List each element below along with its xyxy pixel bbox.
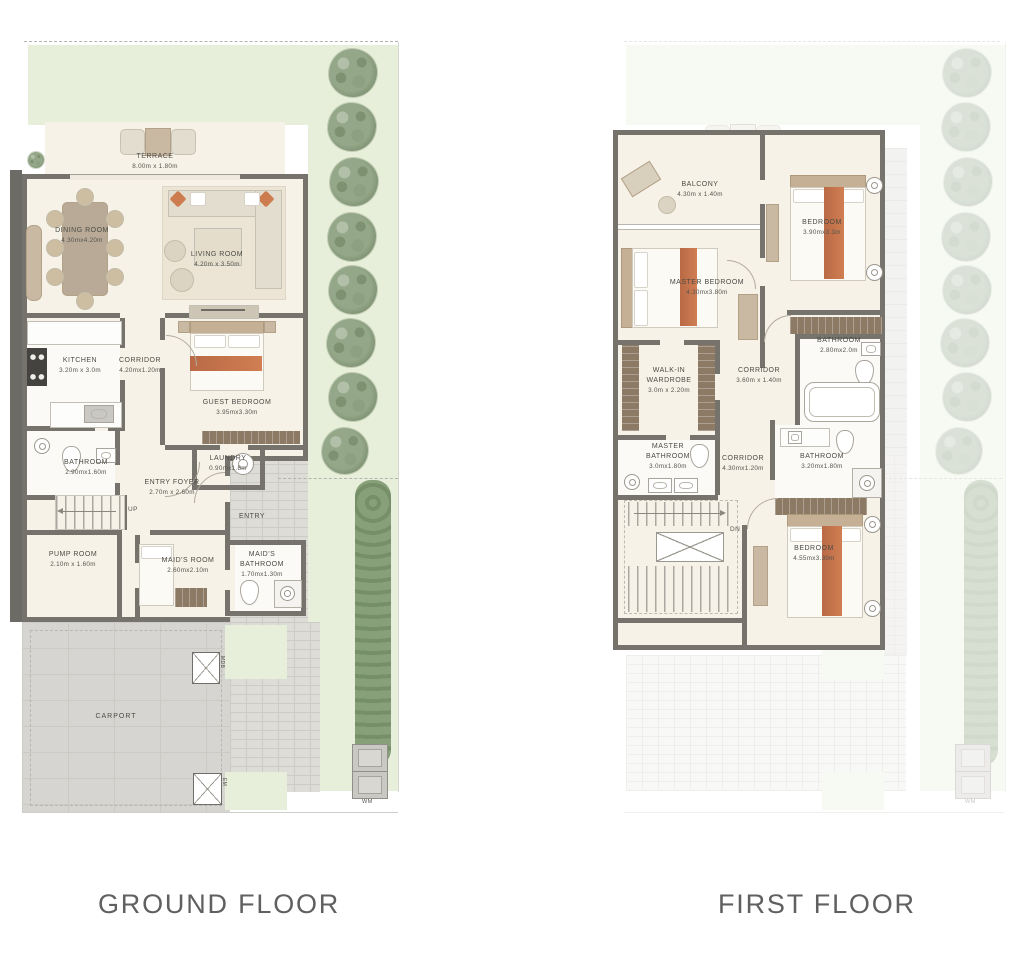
green-patch-lower [225, 772, 287, 810]
wm-label: WM [965, 799, 976, 805]
pillow [793, 189, 828, 203]
stove-icon [27, 348, 47, 386]
bathroom-mid-label: BATHROOM 3.20mx1.80m [800, 452, 844, 471]
ground-floor-caption: GROUND FLOOR [98, 889, 340, 920]
tree-icon [936, 428, 982, 474]
dresser [753, 546, 768, 606]
nightstand [864, 516, 881, 533]
wardrobe [790, 317, 882, 334]
room-dims: 3.90mx3.3m [802, 228, 842, 237]
wall [22, 530, 122, 535]
mdb-box [192, 652, 220, 684]
tree-icon [322, 428, 368, 474]
wall [117, 535, 122, 617]
plot-line-bottom [624, 812, 1004, 813]
wall [225, 540, 230, 570]
wall [248, 445, 308, 450]
party-wall [10, 170, 22, 622]
nightstand [866, 264, 883, 281]
nightstand [178, 321, 190, 333]
room-name: WALK-IN WARDROBE [642, 366, 696, 386]
cushion [190, 192, 206, 206]
pillow [634, 252, 648, 288]
cushion [244, 192, 260, 206]
shower-icon [34, 438, 50, 454]
side-path [885, 148, 907, 478]
plant-icon [28, 152, 44, 168]
wall [760, 204, 765, 228]
bedroom-top-label: BEDROOM 3.90mx3.3m [802, 218, 842, 237]
tree-icon [943, 49, 991, 97]
wall [260, 450, 265, 485]
room-dims: 2.10m x 1.60m [33, 560, 113, 569]
corridor-lower-label: CORRIDOR 4.30mx1.20m [713, 454, 773, 473]
stair-arrowhead [720, 510, 726, 516]
room-dims: 4.20mx1.20m [119, 366, 161, 375]
room-dims: 2.90mx1.60m [64, 468, 108, 477]
wall [225, 502, 230, 541]
tree-icon [943, 266, 991, 314]
nightstand [864, 600, 881, 617]
kitchen-sink [84, 405, 114, 423]
dining-chair [46, 268, 64, 286]
stair-arrow [62, 511, 116, 512]
stair-arrowhead [57, 508, 63, 514]
wall [760, 130, 765, 180]
wall [160, 368, 165, 445]
room-name: KITCHEN [59, 356, 101, 366]
bathroom-top-label: BATHROOM 2.80mx2.0m [817, 336, 861, 355]
tree-icon [328, 213, 376, 261]
carport-label: CARPORT [95, 712, 136, 722]
wall [225, 590, 230, 616]
sink-icon [674, 478, 698, 493]
room-name: MASTER BATHROOM [640, 442, 696, 462]
wall [787, 310, 885, 315]
room-name: GUEST BEDROOM [203, 398, 272, 408]
tree-icon [330, 158, 378, 206]
wall [618, 618, 742, 623]
hedge [355, 480, 391, 766]
wall [715, 400, 720, 435]
fence-line [278, 478, 398, 479]
room-dims: 4.55mx3.30m [793, 554, 834, 563]
stair-landing [656, 532, 724, 562]
bathtub-icon [804, 382, 880, 422]
water-meter [352, 744, 388, 772]
plot-line-right [398, 42, 399, 792]
shower-drain [859, 475, 875, 491]
wm-label: WM [362, 799, 373, 805]
walk-in-wardrobe-label: WALK-IN WARDROBE 3.0m x 2.20m [642, 366, 696, 395]
plot-line-top [624, 41, 1000, 42]
room-dims: 4.20m x 3.50m [191, 260, 243, 269]
tree-icon [941, 319, 989, 367]
room-name: DINING ROOM [55, 226, 109, 236]
room-dims: 3.60m x 1.40m [736, 376, 782, 385]
room-name: BATHROOM [817, 336, 861, 346]
room-name: MAID'S ROOM [162, 556, 215, 566]
sideboard [26, 225, 42, 301]
wall [22, 313, 120, 318]
plot-line-bottom [22, 812, 398, 813]
shower-icon [624, 474, 640, 490]
green-patch-upper [225, 625, 287, 679]
wall [760, 228, 765, 258]
room-dims: 8.00m x 1.80m [132, 162, 178, 171]
room-name: MAID'S BATHROOM [237, 550, 287, 570]
stair-arrow [634, 513, 722, 514]
mdb-label: MDB [219, 656, 225, 668]
wall [613, 130, 885, 135]
first-floor-plan: TERRACE WM BALCONY 4.30m x 1.40m [612, 28, 1012, 818]
maid-wardrobe [175, 588, 207, 607]
room-name: BALCONY [677, 180, 723, 190]
tree-icon [329, 373, 377, 421]
tree-icon [943, 373, 991, 421]
tv-console [189, 305, 259, 319]
master-bedroom-label: MASTER BEDROOM 4.30mx3.80m [670, 278, 744, 297]
area-name: CARPORT [95, 712, 136, 722]
dresser [738, 294, 758, 340]
water-meter [955, 744, 991, 772]
wall [715, 340, 720, 374]
wall [613, 645, 885, 650]
pillow [194, 335, 226, 348]
room-dims: 3.0m x 2.20m [642, 386, 696, 395]
guest-bedroom-label: GUEST BEDROOM 3.95mx3.30m [203, 398, 272, 417]
room-name: MASTER BEDROOM [670, 278, 744, 288]
plot-line-top [24, 41, 398, 42]
pillow [634, 290, 648, 326]
laundry-label: LAUNDRY 0.90mx1.8m [209, 454, 247, 473]
room-dims: 3.95mx3.30m [203, 408, 272, 417]
dining-room-label: DINING ROOM 4.30mx4.20m [55, 226, 109, 245]
room-name: CORRIDOR [736, 366, 782, 376]
wall [880, 130, 885, 650]
tv [201, 309, 245, 311]
room-dims: 3.20m x 3.0m [59, 366, 101, 375]
pillow [228, 335, 260, 348]
floorplan-sheet: TERRACE 8.00m x 1.80m [0, 0, 1024, 960]
master-bathroom-label: MASTER BATHROOM 3.0mx1.80m [640, 442, 696, 471]
hedge [964, 480, 998, 766]
room-dims: 4.30mx4.20m [55, 236, 109, 245]
glazing-line [618, 224, 760, 230]
bathroom-label: BATHROOM 2.90mx1.60m [64, 458, 108, 477]
pillow [790, 528, 825, 542]
room-name: ENTRY FOYER [144, 478, 199, 488]
maids-room-label: MAID'S ROOM 2.60mx2.10m [162, 556, 215, 575]
stairs-down-label: DN [730, 526, 740, 533]
room-name: LAUNDRY [209, 454, 247, 464]
tree-icon [329, 49, 377, 97]
stairs-up-label: UP [128, 506, 138, 513]
balcony-label: BALCONY 4.30m x 1.40m [677, 180, 723, 199]
balcony-table [658, 196, 676, 214]
area-name: ENTRY [239, 512, 265, 522]
wall [22, 617, 230, 622]
tree-icon [328, 103, 376, 151]
dining-table [62, 202, 108, 296]
room-dims: 2.80mx2.0m [817, 346, 861, 355]
bed-runner [822, 526, 842, 616]
wall [613, 130, 618, 650]
maids-bathroom-label: MAID'S BATHROOM 1.70mx1.30m [237, 550, 287, 579]
wardrobe [622, 345, 639, 431]
nightstand [264, 321, 276, 333]
room-dims: 4.30mx3.80m [670, 288, 744, 297]
wall [150, 530, 230, 535]
first-floor-caption: FIRST FLOOR [718, 889, 916, 920]
tree-icon [942, 213, 990, 261]
room-name: CORRIDOR [713, 454, 773, 464]
pump-room-label: PUMP ROOM 2.10m x 1.60m [33, 550, 113, 569]
wall [742, 525, 747, 650]
tree-icon [944, 158, 992, 206]
bed-runner [190, 356, 262, 371]
sink-icon [648, 478, 672, 493]
kitchen-counter [27, 321, 122, 345]
water-meter [352, 771, 388, 799]
room-name: PUMP ROOM [33, 550, 113, 560]
room-dims: 4.30mx1.20m [713, 464, 773, 473]
shower-drain [280, 586, 295, 601]
tree-icon [327, 319, 375, 367]
entry-label: ENTRY [239, 512, 265, 522]
nightstand [866, 177, 883, 194]
stair-flight [628, 502, 732, 526]
staircase [55, 495, 125, 530]
room-dims: 3.20mx1.80m [800, 462, 844, 471]
dining-chair [76, 292, 94, 310]
plot-line-right [1005, 42, 1006, 792]
tree-icon [329, 266, 377, 314]
room-dims: 0.90mx1.8m [209, 464, 247, 473]
terrace-label: TERRACE 8.00m x 1.80m [132, 152, 178, 171]
room-dims: 4.30m x 1.40m [677, 190, 723, 199]
green-patch-lower [822, 772, 884, 810]
sink-icon [788, 431, 802, 444]
wardrobe [202, 431, 300, 444]
dining-chair [76, 188, 94, 206]
wall [760, 286, 765, 368]
tree-icon [942, 103, 990, 151]
room-dims: 3.0mx1.80m [640, 462, 696, 471]
stair-flight [628, 566, 732, 612]
wardrobe [698, 345, 715, 431]
kitchen-label: KITCHEN 3.20m x 3.0m [59, 356, 101, 375]
room-name: CORRIDOR [119, 356, 161, 366]
room-name: TERRACE [132, 152, 178, 162]
bedroom-bottom-label: BEDROOM 4.55mx3.30m [793, 544, 834, 563]
corridor-label: CORRIDOR 4.20mx1.20m [119, 356, 161, 375]
living-room-label: LIVING ROOM 4.20m x 3.50m [191, 250, 243, 269]
entry-foyer-label: ENTRY FOYER 2.70m x 2.60m [144, 478, 199, 497]
water-meter [955, 771, 991, 799]
dresser [766, 204, 779, 262]
wardrobe [775, 498, 867, 515]
room-name: LIVING ROOM [191, 250, 243, 260]
room-dims: 1.70mx1.30m [237, 570, 287, 579]
room-dims: 2.70m x 2.60m [144, 488, 199, 497]
room-name: BEDROOM [793, 544, 834, 554]
wall [160, 318, 165, 340]
wall [230, 611, 306, 616]
ground-floor-plan: TERRACE 8.00m x 1.80m [10, 28, 402, 818]
pouf [164, 240, 186, 262]
pouf [170, 268, 194, 292]
em-label: EM [221, 778, 227, 786]
fence-line [874, 478, 1002, 479]
corridor-upper-label: CORRIDOR 3.60m x 1.40m [736, 366, 782, 385]
room-name: BATHROOM [64, 458, 108, 468]
room-name: BEDROOM [802, 218, 842, 228]
em-box [193, 773, 222, 805]
dining-chair [106, 268, 124, 286]
room-name: BATHROOM [800, 452, 844, 462]
sink-icon [861, 342, 881, 356]
sliding-door [70, 174, 240, 180]
room-dims: 2.60mx2.10m [162, 566, 215, 575]
